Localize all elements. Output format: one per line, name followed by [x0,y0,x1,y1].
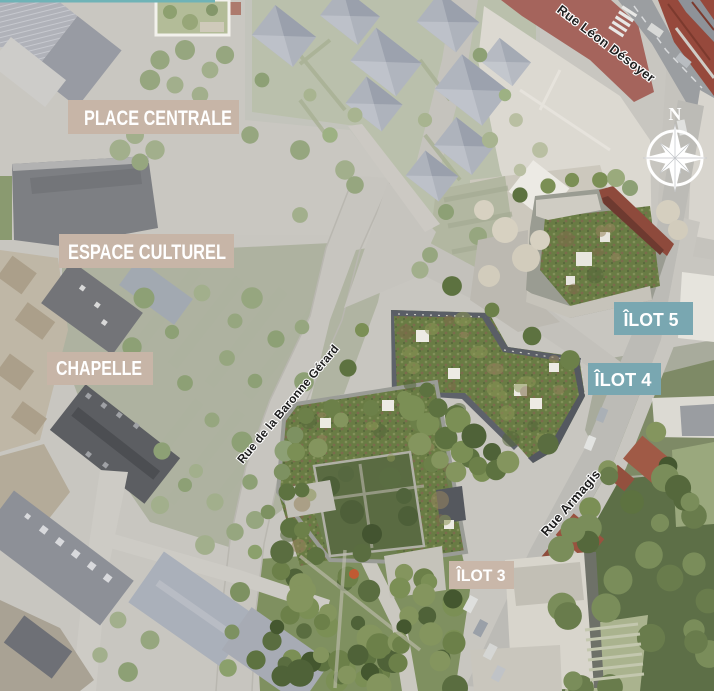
svg-text:ÎLOT 3: ÎLOT 3 [456,566,506,585]
svg-text:N: N [669,104,682,124]
svg-text:ÎLOT 4: ÎLOT 4 [593,369,651,390]
svg-text:PLACE CENTRALE: PLACE CENTRALE [84,107,232,130]
svg-text:CHAPELLE: CHAPELLE [56,358,142,380]
svg-text:ÎLOT 5: ÎLOT 5 [623,309,679,330]
svg-text:ESPACE CULTUREL: ESPACE CULTUREL [68,241,226,264]
